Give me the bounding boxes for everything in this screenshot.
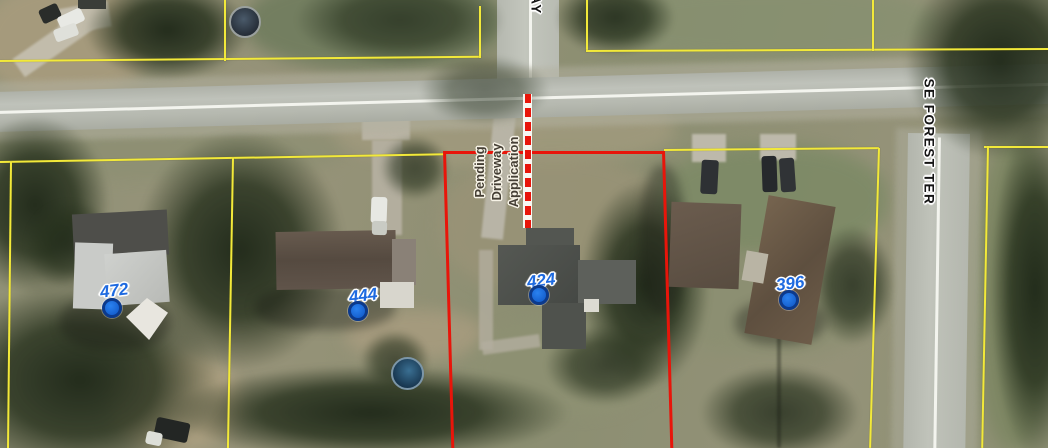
note-line-1: Pending <box>471 116 488 228</box>
address-marker-dot-icon <box>102 298 122 318</box>
vehicle-truck-cab <box>372 221 387 236</box>
parcel-line <box>224 0 226 61</box>
house-444-roof <box>276 230 397 290</box>
fence-shadow-line <box>777 335 781 448</box>
house-444-porch <box>380 282 414 308</box>
address-marker-dot-icon <box>348 301 368 321</box>
pool-round-dark <box>229 6 261 38</box>
vehicle-dark <box>779 158 796 193</box>
parcel-line <box>984 146 1048 148</box>
vehicle-dark <box>761 156 777 193</box>
pending-driveway-note: Pending Driveway Application <box>471 116 525 228</box>
address-marker-dot-icon <box>779 290 799 310</box>
note-line-3: Application <box>505 116 522 228</box>
address-marker-dot-icon <box>529 285 549 305</box>
parcel-line <box>872 0 874 51</box>
pool-blue <box>391 357 424 390</box>
street-label-se-forest-ter: SE FOREST TER <box>922 79 937 199</box>
vehicle-dark <box>700 160 719 195</box>
note-line-2: Driveway <box>488 116 505 228</box>
tree-canopy <box>380 135 450 200</box>
vehicle-truck-white <box>371 197 388 224</box>
street-label-top-partial: AY <box>529 0 544 25</box>
dash-pattern <box>525 94 531 228</box>
parcel-line <box>586 0 588 52</box>
building-edge-top <box>78 0 106 9</box>
house-444-roof-right <box>392 239 416 285</box>
road-se-forest-ter <box>903 133 970 448</box>
house-420-roof <box>669 202 742 289</box>
parcel-line <box>479 6 481 58</box>
aerial-map-canvas[interactable]: Pending Driveway Application SE FOREST T… <box>0 0 1048 448</box>
